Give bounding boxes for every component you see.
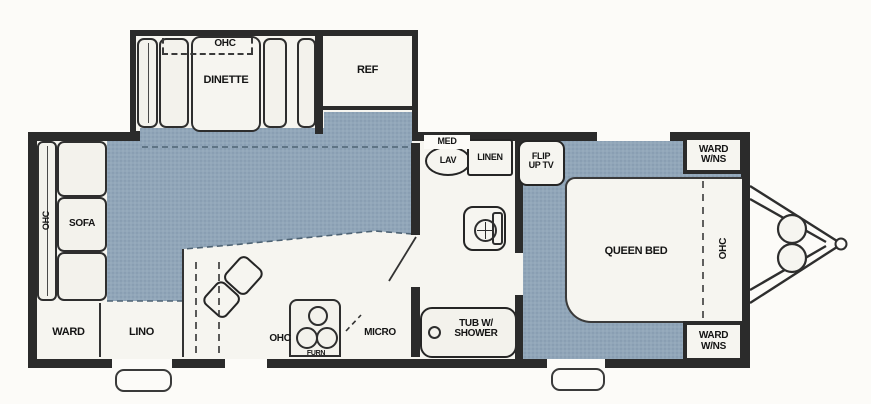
lavatory-sink: LAV [425,146,471,176]
dinette-ohc-dashed-end-left [162,38,164,53]
refrigerator: REF [323,36,412,110]
toilet-flush-icon [474,219,497,242]
sofa-label: SOFA [69,219,95,229]
dinette-ohc-dashed-line [162,53,253,55]
propane-tank-2 [778,244,806,272]
kitchen-ohc-label: OHC [264,334,296,344]
bath-wall-stub-lower [411,287,420,357]
sofa-seat-middle: SOFA [57,197,107,252]
wardrobe-nightstand-top: WARD W/NS [683,136,744,174]
linen-label: LINEN [477,153,503,162]
dinette-bench-right [263,38,287,128]
hitch-coupler [836,239,847,250]
entry-step-main [551,368,605,391]
bedroom-wall-lower [515,295,523,359]
range-stove [289,299,341,357]
medicine-cabinet-label: MED [424,135,470,149]
sofa-seat-top [57,141,107,197]
ref-label: REF [357,65,378,76]
flip-up-tv-label: FLIPUP TV [520,152,562,170]
rear-ohc-label: OHC [42,211,51,230]
ref-partition-wall [315,33,323,134]
floorplan-canvas: OHC DINETTE REF OHC SOFA WARD LINO OHC F… [0,0,871,404]
microwave-label: MICRO [352,328,408,338]
linen-closet: LINEN [467,139,513,176]
ward-ns-top-label: WARD W/NS [699,145,728,165]
burner-right [316,327,338,349]
tub-shower: TUB W/SHOWER [420,307,517,358]
entry-step-rear [115,369,172,392]
bed-ohc-area: OHC [712,224,736,274]
dinette-bench-strip-left [137,38,158,128]
bath-wall-stub-upper [411,143,420,235]
door-gap-rear-entry [112,359,172,368]
flip-up-tv: FLIPUP TV [518,140,565,186]
burner-top [308,306,328,326]
wardrobe-nightstand-bottom: WARD W/NS [683,321,744,362]
lino-label: LINO [100,327,183,338]
queen-bed-label: QUEEN BED [572,246,700,257]
bench-divider [148,43,149,123]
toilet [463,206,506,251]
window-top-bedroom [597,132,670,141]
dinette-bench-strip-right [297,38,316,128]
dinette-label: DINETTE [188,75,264,86]
ward-label: WARD [37,327,100,338]
window-bottom-kitchen [225,359,267,368]
ward-ns-bottom-label: WARD W/NS [699,331,728,351]
sofa-seat-bottom [57,252,107,301]
propane-tank-1 [778,215,806,243]
slideout-ohc-label: OHC [190,39,260,49]
tub-label: TUB W/SHOWER [438,319,514,339]
rear-ohc-cabinet: OHC [37,141,57,301]
lav-label: LAV [440,156,456,165]
bed-ohc-label: OHC [719,238,729,259]
furnace-label: FURN [298,350,334,357]
burner-left [296,327,318,349]
door-gap-main-entry [547,359,605,368]
